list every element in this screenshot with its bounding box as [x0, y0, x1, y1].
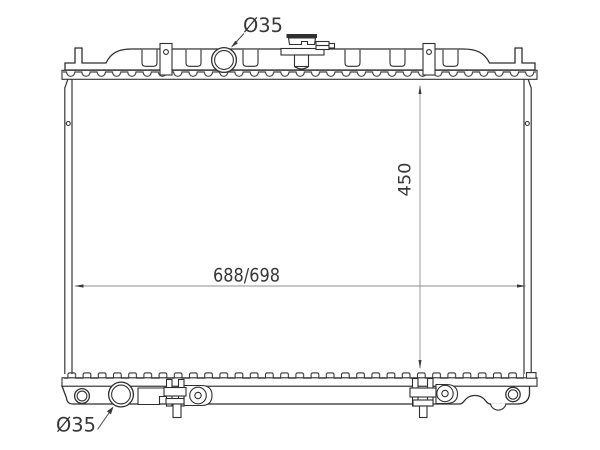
top-bracket-right: [423, 44, 435, 76]
bottom-bump: [491, 403, 507, 410]
dim-width-arrow-left: [75, 284, 84, 287]
callout-bottom-diameter: Ø35: [56, 407, 114, 437]
radiator-technical-drawing: 450 688/698 Ø35 Ø35: [0, 0, 600, 450]
dim-height-arrow-bottom: [419, 360, 422, 369]
cap-neck: [295, 55, 309, 67]
label-top-diameter: Ø35: [243, 14, 283, 37]
bottom-plate-end-tab: [527, 373, 537, 379]
overflow-spout: [316, 42, 335, 50]
label-core-width: 688/698: [213, 265, 280, 287]
dimension-core-height: 450: [396, 85, 422, 369]
cap-body: [289, 38, 316, 45]
top-bracket-right-hole: [427, 50, 432, 55]
top-tank: [62, 34, 537, 80]
top-header-plate: [62, 70, 537, 80]
bracket-right-stem: [420, 406, 428, 418]
bottom-header-plate: [62, 372, 537, 386]
bracket-left-stem: [173, 404, 181, 418]
top-bracket-left-hole: [164, 50, 169, 55]
callout-top-diameter: Ø35: [231, 14, 283, 48]
bottom-port-circle: [109, 382, 134, 407]
filler-port-circle: [212, 48, 237, 73]
drawing-canvas: 450 688/698 Ø35 Ø35: [0, 0, 600, 450]
side-channel-right-hole: [525, 122, 529, 126]
side-channel-left: [65, 79, 72, 374]
leader-bottom-arrow: [107, 407, 114, 415]
side-channel-right: [524, 79, 531, 374]
dimension-core-width: 688/698: [75, 265, 527, 288]
label-core-height: 450: [396, 163, 415, 197]
dim-height-arrow-top: [419, 85, 422, 94]
label-bottom-diameter: Ø35: [56, 414, 96, 437]
side-channel-left-hole: [66, 122, 70, 126]
cap-top: [287, 34, 318, 38]
bottom-tank: [62, 372, 537, 418]
top-bracket-left: [160, 44, 172, 76]
bottom-small-pipe-circle: [75, 389, 90, 404]
dim-width-arrow-right: [517, 284, 526, 287]
bottom-right-pipe-circle: [506, 387, 520, 401]
